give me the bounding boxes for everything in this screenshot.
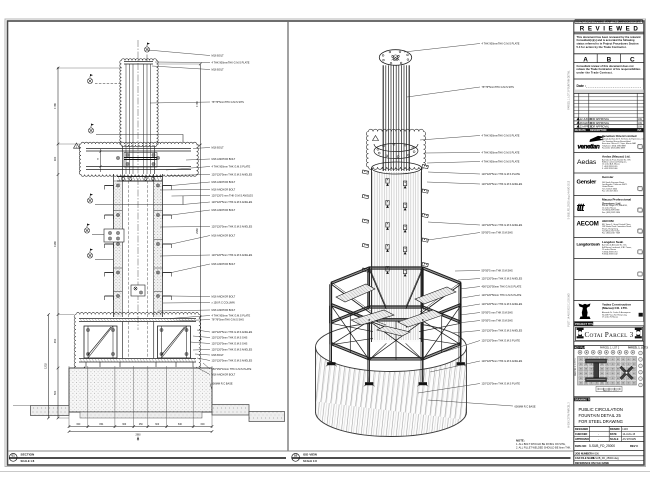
svg-text:PARCEL 1, LOT 1: PARCEL 1, LOT 1 [574,358,577,376]
svg-text:Consultant(s)(s) and is accord: Consultant(s)(s) and is accorded the fol… [577,38,635,42]
svg-text:REV C: REV C [630,444,638,448]
svg-text:01: 01 [12,454,16,458]
svg-text:4 THK 900mm THK G.M.S PLATE: 4 THK 900mm THK G.M.S PLATE [212,314,251,318]
svg-text:PARCEL 1, LOT 2: PARCEL 1, LOT 2 [600,347,620,350]
svg-text:H-506: H-506 [592,452,599,455]
svg-text:600MM R.C BASE: 600MM R.C BASE [212,382,233,386]
svg-text:DWG NO: DWG NO [575,444,586,448]
svg-text:M16 ANCHOR BOLT: M16 ANCHOR BOLT [212,234,236,238]
svg-text:JOB NUMBER: JOB NUMBER [575,452,592,455]
svg-text:5-SUB_FD_25000.dwg 14-AUG-201: 5-SUB_FD_25000.dwg 14-AUG-2015 [568,180,571,219]
svg-text:SCALE 1:8: SCALE 1:8 [303,459,317,463]
svg-text:50*50*5 mm THK G.M.SHS: 50*50*5 mm THK G.M.SHS [482,311,514,315]
svg-text:M16 ANCHOR BOLT: M16 ANCHOR BOLT [212,295,236,299]
svg-text:17 andar H, Macau: 17 andar H, Macau [602,316,618,319]
svg-text:120*120*5mm THK G.M.S ANGLES: 120*120*5mm THK G.M.S ANGLES [482,277,523,281]
svg-text:PARCEL 1 LOT 2: PARCEL 1 LOT 2 [603,389,619,392]
svg-text:50*50*5 mm THK G.M.SHS: 50*50*5 mm THK G.M.SHS [482,269,514,273]
svg-text:4 THK 900mmTHK G.M.S PLATE: 4 THK 900mmTHK G.M.S PLATE [482,160,520,164]
svg-text:120*120*5mm THK G.M.S PLATE: 120*120*5mm THK G.M.S PLATE [482,382,521,386]
svg-text:SCALE 1:8: SCALE 1:8 [21,459,35,463]
svg-text:under the Trade Contract.: under the Trade Contract. [577,71,613,75]
svg-text:M16 BOLT: M16 BOLT [212,353,225,357]
svg-text:1786: 1786 [195,101,199,107]
svg-text:120*120*5mm THK G.M.S ANGLES: 120*120*5mm THK G.M.S ANGLES [482,182,523,186]
svg-text:x 150 R.C COLUMN: x 150 R.C COLUMN [212,301,235,305]
svg-text:APPROVED: APPROVED [575,438,589,441]
svg-text:Langdon Seah: Langdon Seah [602,240,623,244]
svg-text:4 THK 900mmTHK G.M.S PLATE: 4 THK 900mmTHK G.M.S PLATE [482,134,520,138]
svg-text:CAD FILE NAME: CAD FILE NAME [575,457,595,460]
svg-text:14-AUG-15: 14-AUG-15 [623,433,636,436]
svg-text:ISO VIEW: ISO VIEW [303,453,317,457]
svg-text:M16 BOLT: M16 BOLT [212,146,225,150]
svg-text:600MM R.C BASE: 600MM R.C BASE [515,405,536,409]
svg-text:120*120*5 mm THK G.M.S ANGLES: 120*120*5 mm THK G.M.S ANGLES [212,194,254,198]
svg-text:Aedas (Macau) Ltd.: Aedas (Macau) Ltd. [602,155,631,159]
svg-text:120*120*5mm THK G.M.S ANGLES: 120*120*5mm THK G.M.S ANGLES [212,253,253,257]
svg-text:120*120*5mm THK G.M.S ANGLES: 120*120*5mm THK G.M.S ANGLES [212,173,253,177]
svg-text:DRAWING TITLE: DRAWING TITLE [575,399,595,402]
svg-text:M16 ANCHOR BOLT: M16 ANCHOR BOLT [212,373,236,377]
svg-text:5-SUB_FD_25000.dwg: 5-SUB_FD_25000.dwg [593,457,619,460]
svg-text:500: 500 [53,390,57,395]
svg-text:120*120*50mm THK G.M.S PLATE: 120*120*50mm THK G.M.S PLATE [482,293,522,297]
svg-text:76*76*5mmTHK G.M.S SHS: 76*76*5mmTHK G.M.S SHS [212,318,245,322]
svg-text:150*150*10mm THK G.M.S PLATE: 150*150*10mm THK G.M.S PLATE [212,367,252,371]
svg-text:PROJECT TITLE: PROJECT TITLE [575,322,595,326]
svg-text:5-SUB_FD_25000: 5-SUB_FD_25000 [589,444,615,448]
svg-text:02: 02 [294,454,298,458]
svg-text:M16 BOLT: M16 BOLT [212,54,225,58]
svg-text:LangdonSeah: LangdonSeah [577,242,601,247]
svg-text:M16 ANCHOR BOLT: M16 ANCHOR BOLT [212,180,236,184]
svg-text:Fax: (853) 2878 1890: Fax: (853) 2878 1890 [602,212,620,214]
svg-text:120*120*5mm THK G.M.S ANGLES: 120*120*5mm THK G.M.S ANGLES [212,330,253,334]
svg-text:450: 450 [53,338,57,343]
svg-text:50*50*5 mm THK G.M.SHS: 50*50*5 mm THK G.M.SHS [482,231,514,235]
svg-text:DATE: DATE [610,433,617,436]
svg-text:Consultant review of this docu: Consultant review of this document does … [577,64,634,68]
svg-text:76*76*5mmTHK G.M.S SHS: 76*76*5mmTHK G.M.S SHS [212,100,245,104]
svg-text:H-506 COTAI PARCEL 3: H-506 COTAI PARCEL 3 [568,402,571,428]
svg-text:REFERENCE ON FILE NAME: REFERENCE ON FILE NAME [575,462,609,465]
svg-text:AECOM: AECOM [577,221,599,228]
svg-text:LWO: LWO [623,428,629,431]
svg-text:DRAWN: DRAWN [610,428,620,431]
svg-text:1380: 1380 [53,241,57,247]
svg-text:COTAI PARCEL 3: COTAI PARCEL 3 [585,331,634,339]
svg-text:DESIGNED: DESIGNED [575,428,588,431]
svg-text:1232: 1232 [43,363,47,369]
svg-text:FOUNTAIN DETAIL 25: FOUNTAIN DETAIL 25 [579,413,622,418]
svg-text:50*50*5 mm THK G.M.SHS: 50*50*5 mm THK G.M.SHS [482,319,514,323]
svg-text:4 THK 900mmTHK G.M.S PLATE: 4 THK 900mmTHK G.M.S PLATE [482,151,520,155]
svg-text:DO NOT SCALE DRAWING. VERIFY A: DO NOT SCALE DRAWING. VERIFY ALL DIMENSI… [576,21,641,24]
svg-text:120*120*5mm THK G.M.S ANGLES: 120*120*5mm THK G.M.S ANGLES [212,200,253,204]
svg-text:M16 ANCHOR BOLT: M16 ANCHOR BOLT [212,308,236,312]
svg-text:M16 ANCHOR BOLT: M16 ANCHOR BOLT [212,208,236,212]
svg-text:120*120*5mm THK G.M.S ANGLES: 120*120*5mm THK G.M.S ANGLES [212,348,253,352]
svg-text:Venetian Orient Limited: Venetian Orient Limited [602,134,637,138]
svg-text:76*76*5mmTHK G.M.S SHS: 76*76*5mmTHK G.M.S SHS [482,85,515,89]
svg-text:F (853) 2833 1532: F (853) 2833 1532 [602,254,618,256]
svg-text:120*120*5mm THK G.M.S PLATE: 120*120*5mm THK G.M.S PLATE [482,339,521,343]
svg-text:120*120*5mm THK G.M.S SHS: 120*120*5mm THK G.M.S SHS [212,342,248,346]
svg-text:120*120*5mm THK G.M.S ANGLES: 120*120*5mm THK G.M.S ANGLES [482,359,523,363]
svg-text:2960: 2960 [135,434,141,436]
svg-text:4 THK 900mmTHK G.M.S PLATE: 4 THK 900mmTHK G.M.S PLATE [482,42,520,46]
svg-text:120*120*5mm THK G.M.S ANGLES: 120*120*5mm THK G.M.S ANGLES [482,329,523,333]
svg-text:This document has been reviewe: This document has been reviewed by the r… [577,35,641,39]
svg-text:2. ALL FILLET WELDED SHOULD BE: 2. ALL FILLET WELDED SHOULD BE 6mm THK. [516,447,571,450]
svg-text:Aedas: Aedas [577,159,597,166]
svg-text:120*120*5mm THK G.M.S ANGLES: 120*120*5mm THK G.M.S ANGLES [212,225,253,229]
svg-text:120*120*5mm THK G.M.S PLATE: 120*120*5mm THK G.M.S PLATE [482,172,521,176]
svg-text:(Macau) CO. LTD.: (Macau) CO. LTD. [602,306,628,310]
svg-text:PARCEL 1, LOT 3: PARCEL 1, LOT 3 [628,347,648,350]
svg-text:M16 ANCHOR BOLT: M16 ANCHOR BOLT [212,157,236,161]
svg-text:1786: 1786 [53,103,57,109]
svg-text:300: 300 [53,156,57,161]
svg-text:PARCEL 1, LOT 2 FOUNTAIN DETA: PARCEL 1, LOT 2 FOUNTAIN DETAIL [568,70,571,110]
svg-text:120*120*5mm THK G.M.S ANGLES: 120*120*5mm THK G.M.S ANGLES [482,302,523,306]
svg-text:Facsimile: (853) 2882 8889: Facsimile: (853) 2882 8889 [602,148,625,150]
svg-text:status referred to in Projec: status referred to in Project Procedures… [577,42,639,46]
svg-text:CHECKED: CHECKED [575,433,588,436]
svg-text:M16 BOLT: M16 BOLT [212,68,225,72]
svg-text:SECTION: SECTION [21,453,36,457]
svg-text:4 THK 900mm THK G.M.S PLATE: 4 THK 900mm THK G.M.S PLATE [212,165,251,169]
svg-text:M16 ANCHOR BOLT: M16 ANCHOR BOLT [212,188,236,192]
svg-text:120*120*5mm THK G.M.S SHS: 120*120*5mm THK G.M.S SHS [212,336,248,340]
svg-text:relieve the Trade Contractor o: relieve the Trade Contractor of his resp… [577,67,642,71]
svg-text:120*120*5mm THK G.M.S ANGLES: 120*120*5mm THK G.M.S ANGLES [482,223,523,227]
svg-text:PLOT: 14-AUG-2015 11:02 LWO: PLOT: 14-AUG-2015 11:02 LWO [568,293,571,326]
svg-text:SCALE: SCALE [610,438,619,441]
svg-text:KEY PLAN: KEY PLAN [575,346,587,349]
svg-text:4 THK 900mmTHK G.M.S PLATE: 4 THK 900mmTHK G.M.S PLATE [212,61,250,65]
svg-text:NOTE:: NOTE: [516,439,525,443]
svg-text:Date :: Date : [577,84,586,88]
svg-text:120*120*5mm THK G.M.S ANGLES: 120*120*5mm THK G.M.S ANGLES [212,359,253,363]
svg-text:R E V I E W E D: R E V I E W E D [580,26,639,33]
svg-text:AS SHOWN: AS SHOWN [623,438,637,441]
svg-text:F +853 2833 1066: F +853 2833 1066 [602,168,617,170]
svg-text:Fax: 213.327.3601: Fax: 213.327.3601 [602,191,618,193]
svg-text:5.4 for action by the Trade Co: 5.4 for action by the Trade Contractor. [577,45,627,49]
svg-text:M16 ANCHOR BOLT: M16 ANCHOR BOLT [212,262,236,266]
svg-text:Gensler: Gensler [602,175,614,179]
svg-text:400*120*50mm THK G.M.S PLATE: 400*120*50mm THK G.M.S PLATE [482,285,522,289]
svg-text:PUBLIC CIRCULATION: PUBLIC CIRCULATION [579,407,623,412]
svg-text:AECOM: AECOM [602,219,614,223]
svg-text:FOR STEEL DRAWING: FOR STEEL DRAWING [579,419,623,424]
svg-text:Fax: (852) 2317 7609: Fax: (852) 2317 7609 [602,233,620,235]
svg-text:2360: 2360 [195,228,199,234]
svg-text:Gensler: Gensler [577,180,598,186]
svg-text:venetian: venetian [578,144,601,151]
